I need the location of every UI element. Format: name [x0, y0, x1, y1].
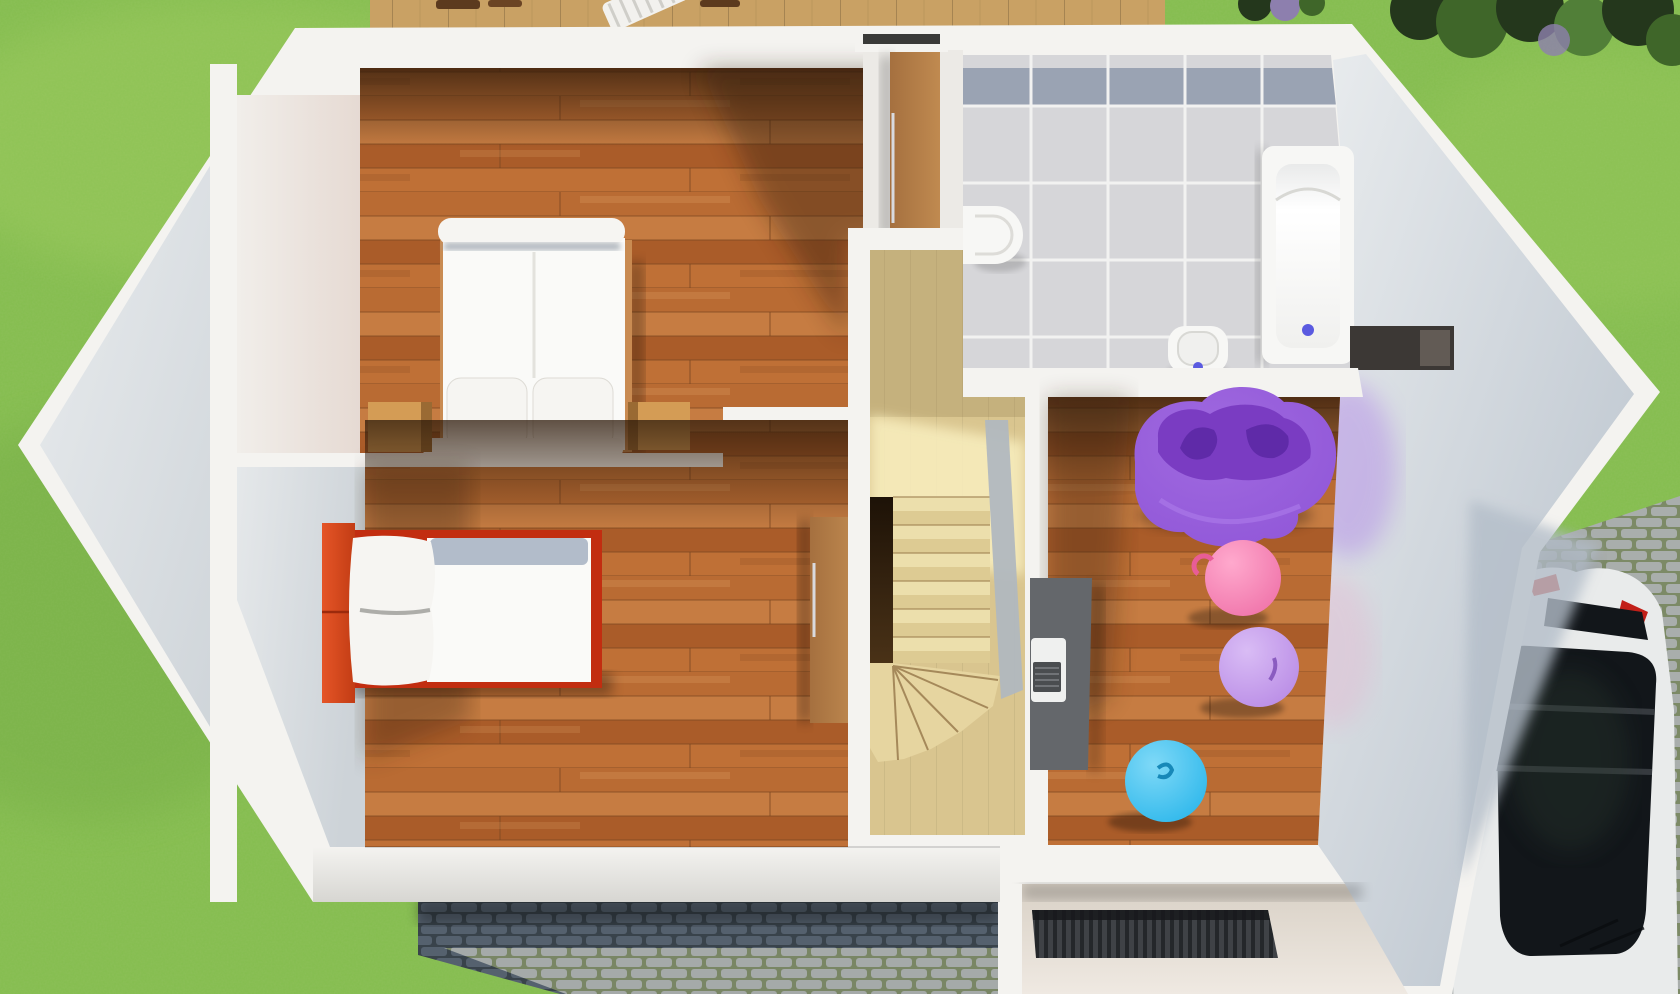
roll-shadow — [444, 243, 620, 250]
laptop-keyboard — [1033, 662, 1061, 692]
desk — [1030, 578, 1104, 772]
flower-shrub — [1538, 24, 1570, 56]
bathtub — [1256, 146, 1354, 364]
tub-drain — [1302, 324, 1314, 336]
duvet-fold — [430, 538, 588, 565]
chair-back — [700, 0, 740, 7]
chair-back — [488, 0, 522, 7]
wall-niche — [1350, 326, 1454, 370]
wardrobe — [890, 52, 940, 238]
ball — [1125, 740, 1207, 822]
kids-room-right — [1030, 387, 1340, 845]
doormat — [1032, 910, 1278, 958]
floor-plan-render — [0, 0, 1680, 994]
bedroom-lower-left — [237, 420, 858, 847]
bathroom-bottom-wall — [963, 368, 1363, 397]
porch-shadow — [1022, 884, 1362, 900]
tub-basin — [1276, 164, 1340, 348]
chair-back — [436, 0, 480, 9]
bottom-wall-band — [313, 847, 1000, 902]
single-bed-red — [322, 523, 612, 703]
niche-light — [1420, 330, 1450, 366]
ball — [1219, 627, 1299, 707]
stair-void — [870, 497, 893, 665]
wardrobe-nook — [855, 28, 963, 240]
left-inner-wall — [210, 64, 237, 902]
wardrobe-shadow — [798, 520, 812, 722]
toilet-seat — [1178, 332, 1218, 365]
laptop — [1031, 638, 1066, 702]
porch-top-wall — [1022, 845, 1345, 884]
bedroom-left-wall-face — [237, 95, 360, 453]
tile-accent-band — [963, 68, 1336, 106]
window-slot — [863, 34, 940, 44]
ball — [1205, 540, 1281, 616]
bedroom-upper-left — [237, 68, 890, 456]
doormat-edge — [1032, 910, 1270, 920]
wall-left — [848, 247, 870, 847]
stair-treads — [893, 497, 990, 663]
wall-band — [737, 407, 848, 420]
porch-left-wall — [998, 884, 1022, 994]
duvet-roll — [438, 218, 625, 245]
